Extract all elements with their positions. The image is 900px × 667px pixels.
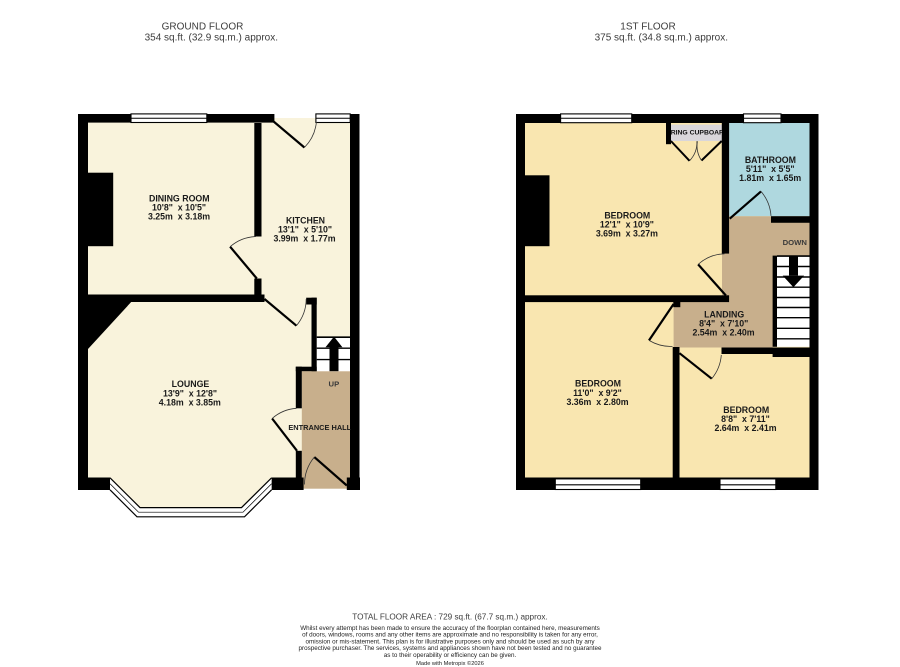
svg-text:ENTRANCE HALL: ENTRANCE HALL [288, 423, 351, 432]
svg-text:UP: UP [329, 380, 340, 389]
svg-text:3.25m x 3.18m: 3.25m x 3.18m [148, 212, 210, 222]
svg-text:GROUND FLOOR: GROUND FLOOR [162, 22, 244, 33]
svg-text:1.81m x 1.65m: 1.81m x 1.65m [739, 173, 801, 183]
svg-text:1ST FLOOR: 1ST FLOOR [620, 22, 675, 33]
svg-text:2.54m x 2.40m: 2.54m x 2.40m [692, 327, 754, 337]
svg-text:as to their operability or eff: as to their operability or efficiency ca… [384, 652, 517, 659]
svg-text:3.99m x 1.77m: 3.99m x 1.77m [273, 233, 335, 243]
svg-text:3.36m x 2.80m: 3.36m x 2.80m [566, 397, 628, 407]
svg-text:DOWN: DOWN [783, 238, 808, 247]
svg-text:AIRING CUPBOARD: AIRING CUPBOARD [664, 130, 729, 137]
svg-text:Made with Metropix ©2026: Made with Metropix ©2026 [416, 660, 484, 667]
svg-text:375 sq.ft. (34.8 sq.m.) approx: 375 sq.ft. (34.8 sq.m.) approx. [595, 33, 728, 44]
svg-text:TOTAL FLOOR AREA : 729 sq.ft.: TOTAL FLOOR AREA : 729 sq.ft. (67.7 sq.m… [352, 613, 548, 622]
svg-text:2.64m x 2.41m: 2.64m x 2.41m [714, 423, 776, 433]
svg-text:4.18m x 3.85m: 4.18m x 3.85m [159, 398, 221, 408]
svg-text:354 sq.ft. (32.9 sq.m.) approx: 354 sq.ft. (32.9 sq.m.) approx. [145, 33, 278, 44]
svg-text:3.69m x 3.27m: 3.69m x 3.27m [596, 228, 658, 238]
